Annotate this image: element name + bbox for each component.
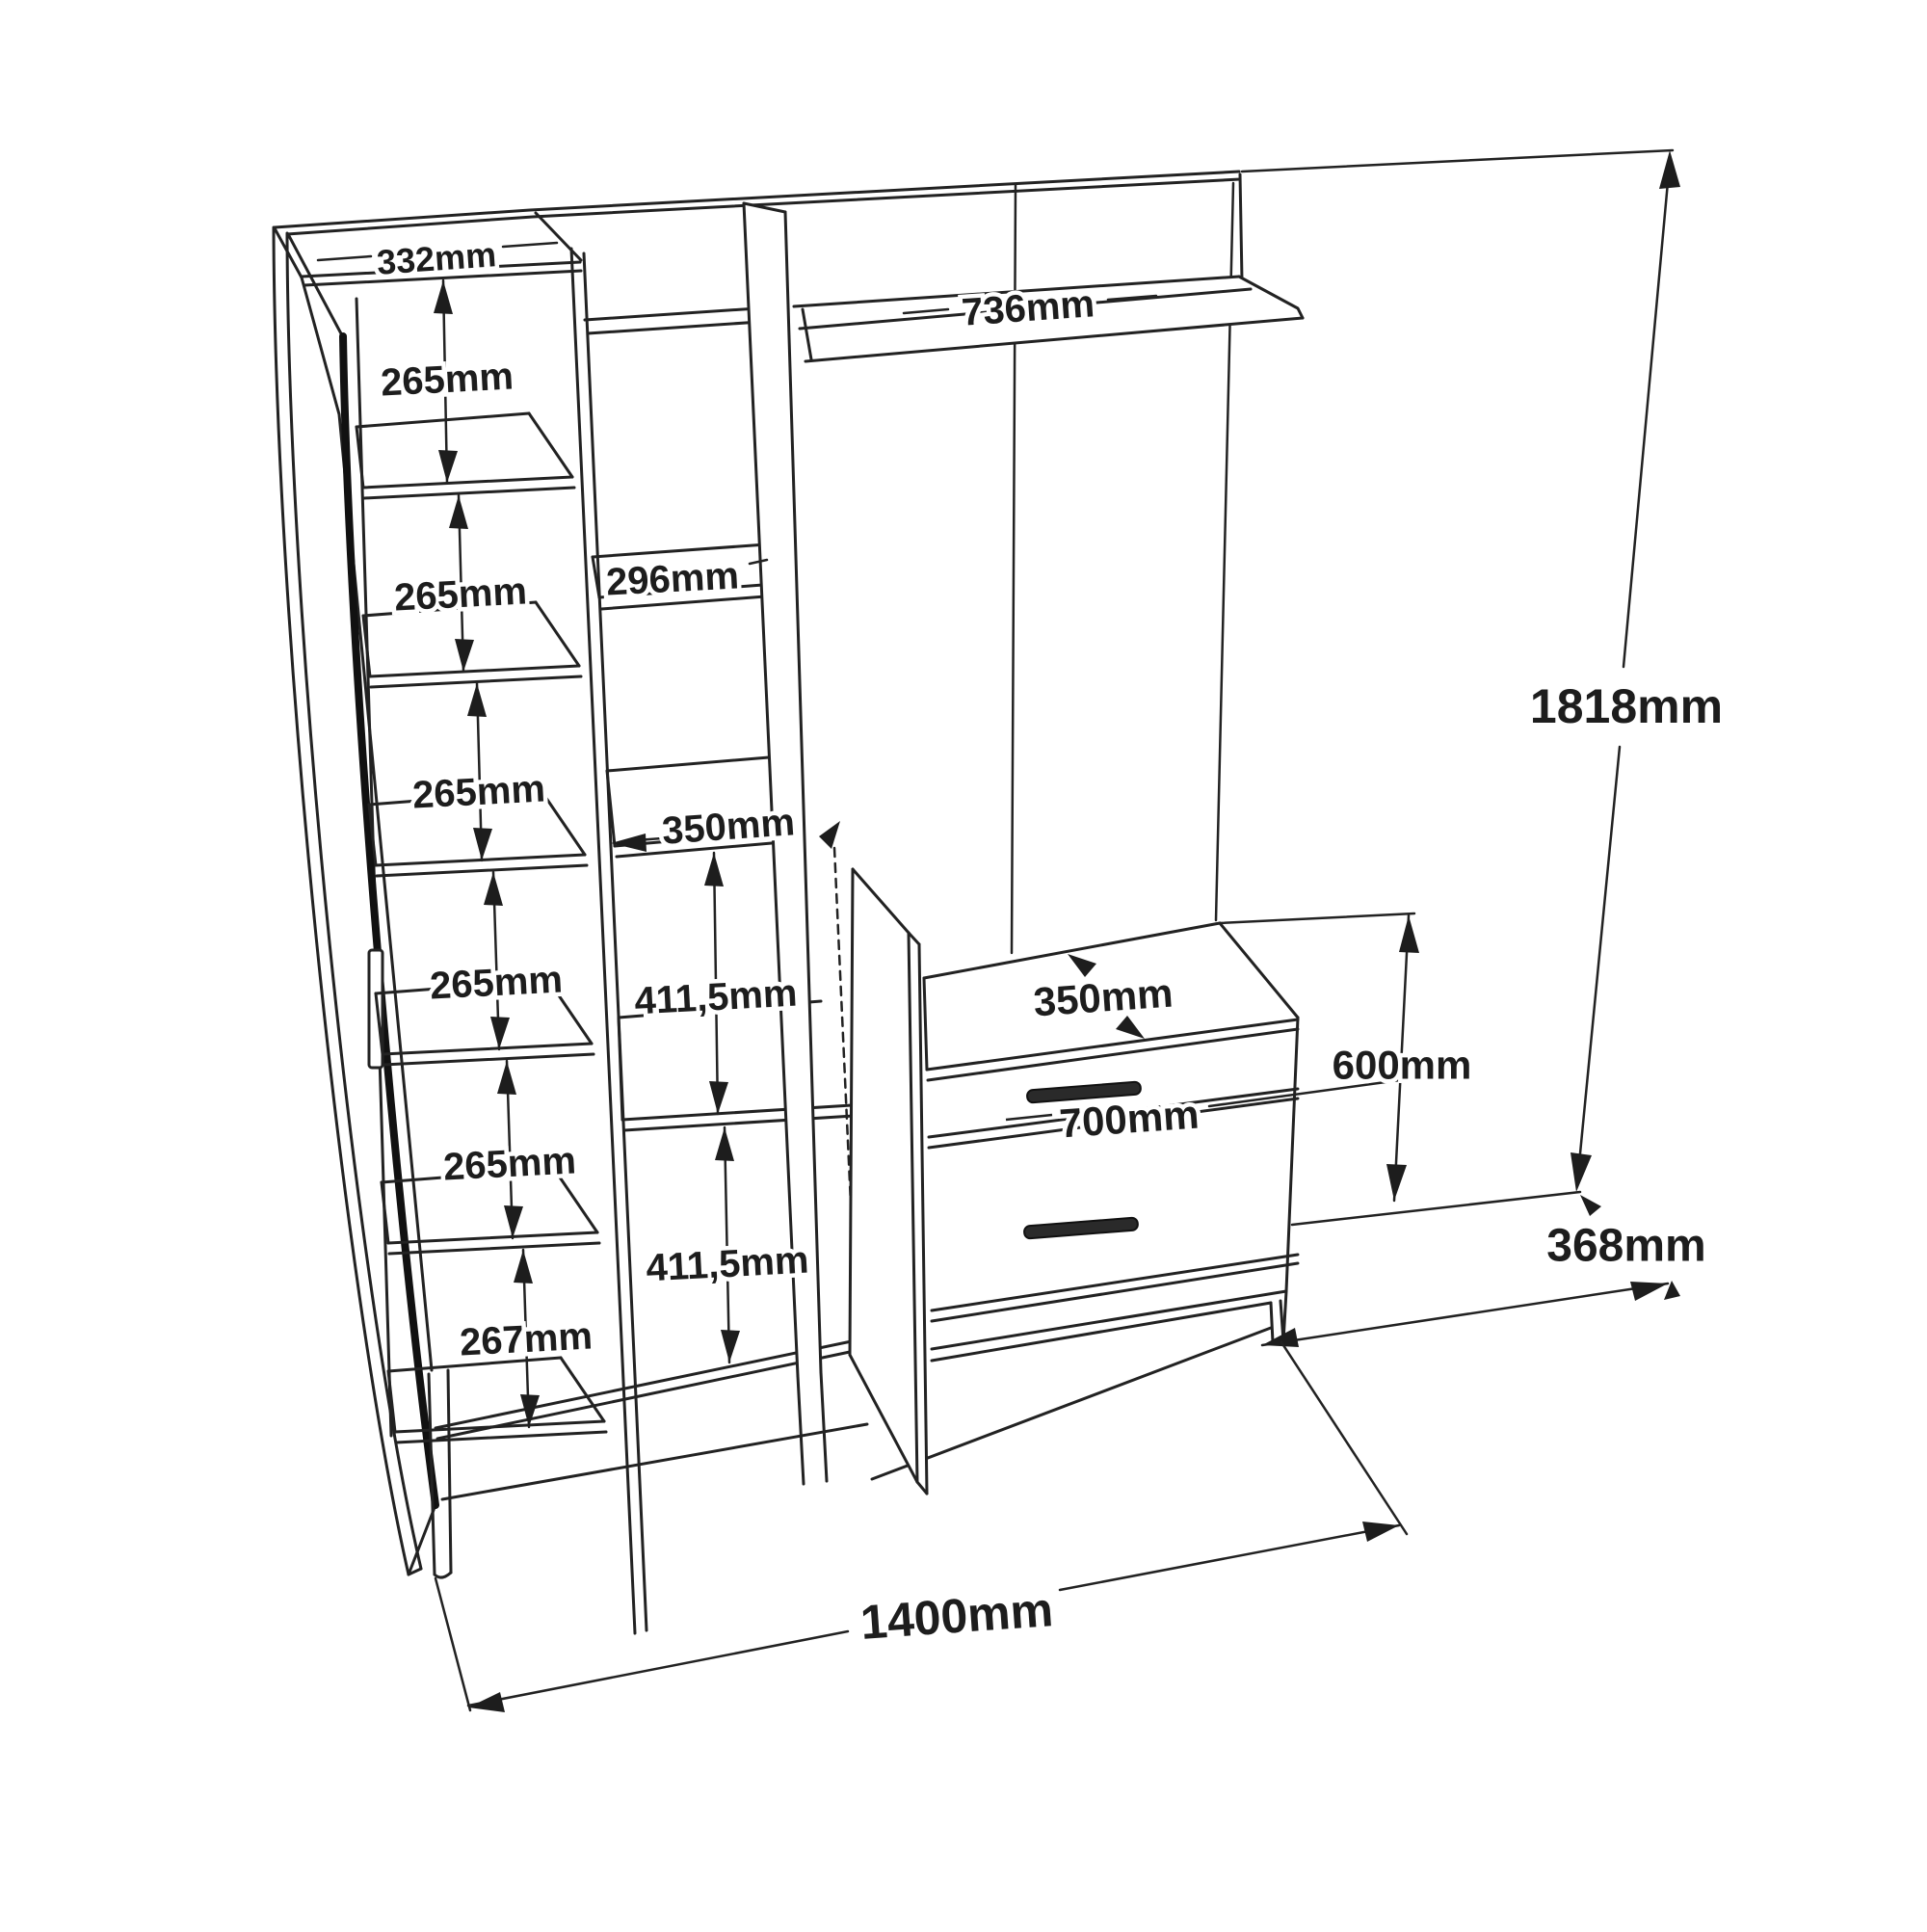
svg-text:600mm: 600mm [1333, 1043, 1472, 1088]
svg-text:1818mm: 1818mm [1530, 679, 1723, 733]
svg-text:265mm: 265mm [442, 1139, 577, 1188]
svg-text:265mm: 265mm [411, 767, 546, 816]
svg-text:296mm: 296mm [605, 554, 740, 603]
svg-text:265mm: 265mm [393, 569, 528, 619]
svg-text:267mm: 267mm [459, 1314, 594, 1363]
svg-text:411,5mm: 411,5mm [633, 972, 798, 1023]
svg-text:332mm: 332mm [376, 234, 498, 282]
svg-text:411,5mm: 411,5mm [645, 1239, 809, 1290]
svg-text:368mm: 368mm [1546, 1221, 1705, 1272]
svg-text:265mm: 265mm [429, 958, 564, 1007]
svg-text:265mm: 265mm [380, 355, 515, 404]
